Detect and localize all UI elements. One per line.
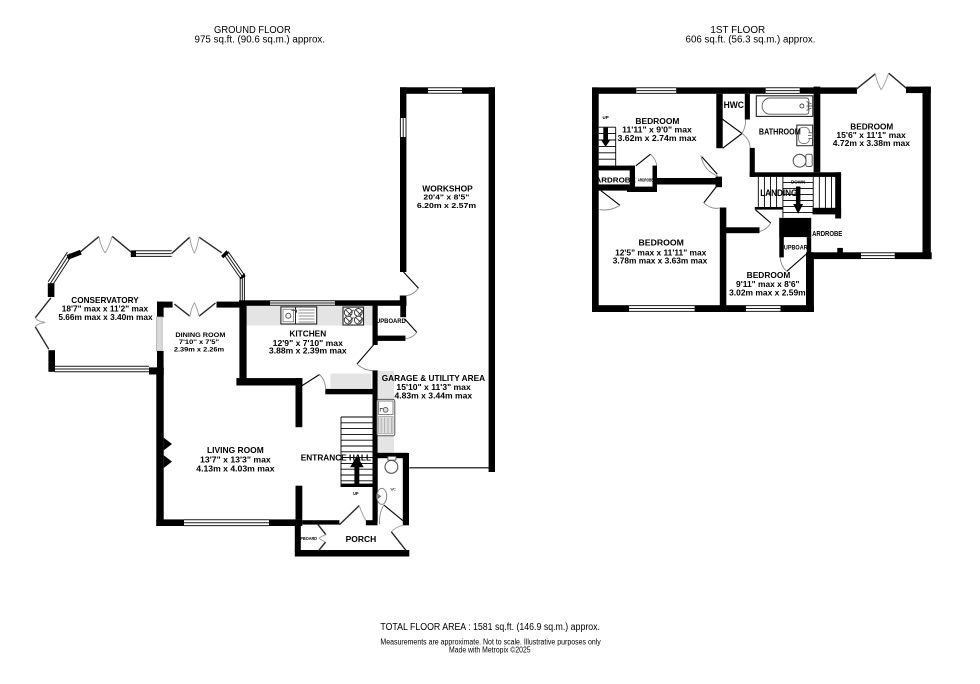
svg-text:6.20m x 2.57m: 6.20m x 2.57m bbox=[417, 201, 477, 210]
svg-text:606 sq.ft. (56.3 sq.m.) approx: 606 sq.ft. (56.3 sq.m.) approx. bbox=[686, 34, 816, 45]
svg-text:TOTAL FLOOR AREA : 1581 sq.ft.: TOTAL FLOOR AREA : 1581 sq.ft. (146.9 sq… bbox=[380, 622, 600, 633]
svg-text:3.88m x 2.39m max: 3.88m x 2.39m max bbox=[269, 345, 347, 355]
svg-text:2.39m x 2.26m: 2.39m x 2.26m bbox=[174, 346, 225, 353]
svg-text:PORCH: PORCH bbox=[346, 534, 377, 544]
svg-text:5.66m max x 3.40m max: 5.66m max x 3.40m max bbox=[58, 312, 153, 322]
svg-text:UPBOARD: UPBOARD bbox=[376, 318, 406, 325]
svg-text:ENTRANCE HALL: ENTRANCE HALL bbox=[301, 453, 371, 463]
svg-text:DOWN: DOWN bbox=[791, 179, 806, 184]
svg-text:WC: WC bbox=[391, 488, 397, 492]
svg-text:3.78m max x 3.63m max: 3.78m max x 3.63m max bbox=[613, 256, 708, 266]
svg-text:3.62m x 2.74m max: 3.62m x 2.74m max bbox=[618, 133, 697, 143]
svg-text:3.02m max x 2.59m: 3.02m max x 2.59m bbox=[729, 287, 806, 297]
svg-text:4.83m x 3.44m max: 4.83m x 3.44m max bbox=[395, 390, 473, 400]
svg-text:7'10'' x 7'5": 7'10'' x 7'5" bbox=[179, 339, 219, 346]
svg-text:BATHROOM: BATHROOM bbox=[759, 126, 801, 136]
svg-text:ARDROBE: ARDROBE bbox=[596, 175, 636, 184]
svg-text:UP: UP bbox=[353, 491, 358, 496]
svg-text:PBOARD: PBOARD bbox=[300, 536, 317, 542]
svg-text:4.13m x 4.03m max: 4.13m x 4.03m max bbox=[196, 463, 275, 473]
svg-text:BEDROOM: BEDROOM bbox=[639, 239, 685, 248]
svg-text:ARDROBE: ARDROBE bbox=[812, 229, 842, 238]
svg-text:4.72m x 3.38m max: 4.72m x 3.38m max bbox=[833, 138, 911, 148]
svg-text:UP: UP bbox=[603, 115, 609, 120]
svg-text:UPBOAR: UPBOAR bbox=[784, 244, 808, 251]
svg-text:975 sq.ft. (90.6 sq.m.) approx: 975 sq.ft. (90.6 sq.m.) approx. bbox=[195, 34, 326, 45]
svg-text:Made with Metropix ©2025: Made with Metropix ©2025 bbox=[449, 646, 531, 655]
svg-text:ARDROBE: ARDROBE bbox=[638, 178, 654, 183]
svg-text:HWC: HWC bbox=[724, 100, 745, 110]
svg-text:LANDING: LANDING bbox=[760, 188, 797, 198]
